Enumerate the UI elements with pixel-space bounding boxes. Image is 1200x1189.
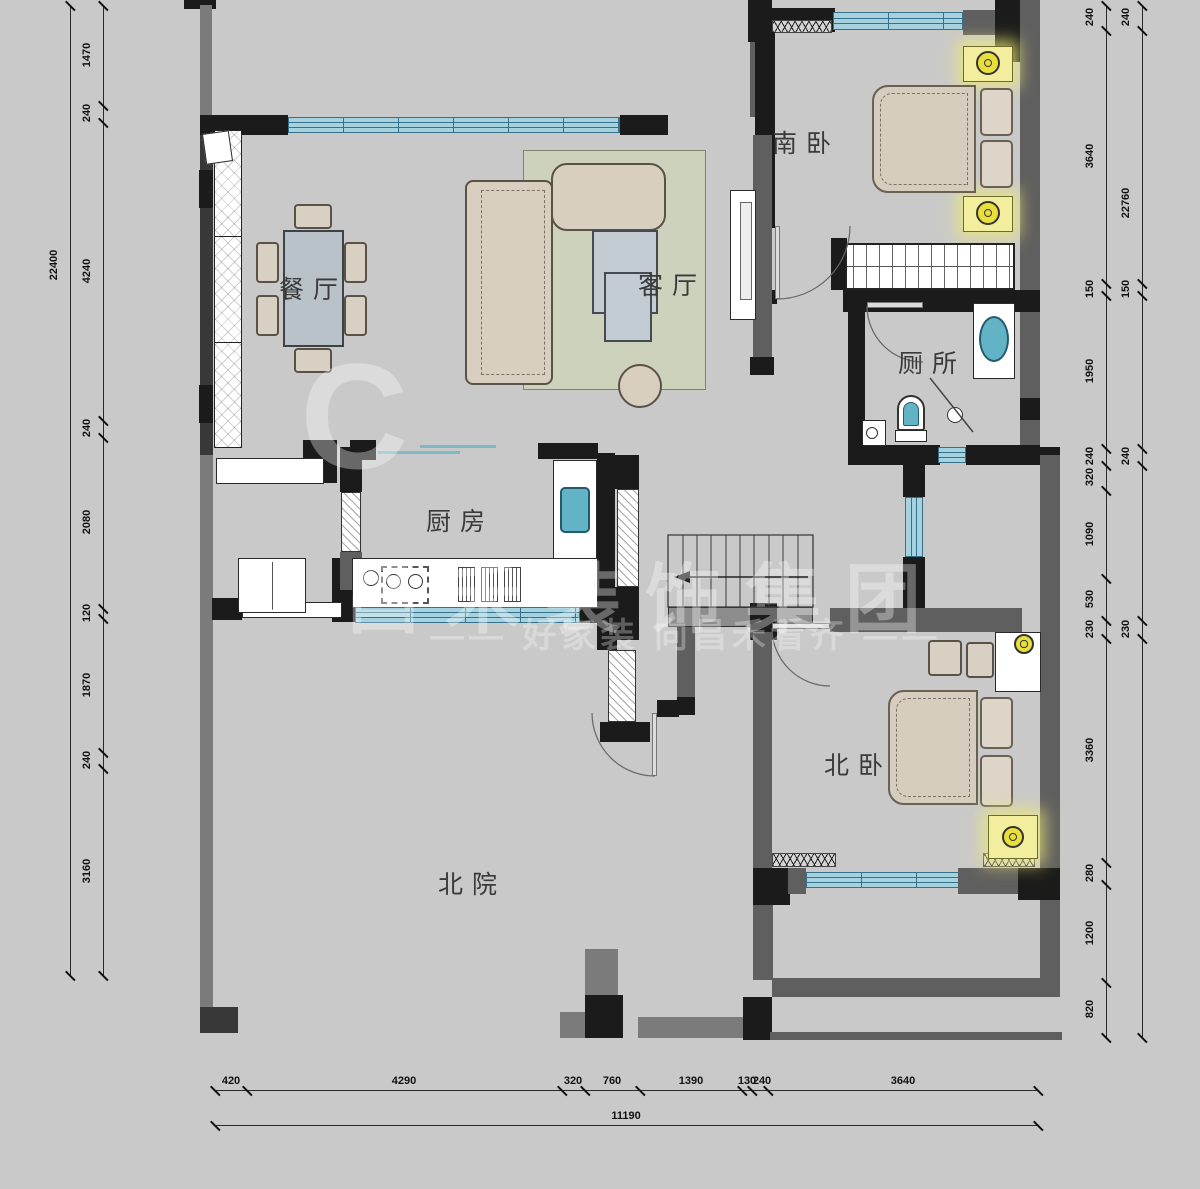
shower-partition [930, 378, 973, 432]
dimension-label: 760 [603, 1075, 621, 1087]
faucet [363, 570, 379, 586]
dimension-label: 2080 [81, 510, 93, 534]
window [905, 497, 923, 557]
door-leaf [867, 302, 923, 308]
dimension-label: 3160 [81, 859, 93, 883]
dimension-line-left-chain [103, 5, 104, 975]
cabinet-door [341, 492, 361, 552]
dimension-line-left-total [70, 5, 71, 975]
side-table [928, 640, 962, 676]
wall-segment [200, 5, 212, 117]
fridge [238, 558, 306, 613]
wall-segment [200, 1007, 238, 1033]
dimension-label: 150 [1120, 280, 1132, 298]
wall-segment [638, 1017, 743, 1038]
wall-segment [340, 447, 362, 492]
wall-segment [200, 455, 213, 1007]
wall-segment [600, 722, 650, 742]
cabinet-divider [214, 236, 242, 237]
dimension-label: 120 [81, 604, 93, 622]
dimension-label: 1870 [81, 673, 93, 697]
wall-segment [770, 1032, 1062, 1040]
wall-segment [677, 627, 695, 700]
wall-segment [753, 868, 790, 905]
wall-segment [848, 445, 940, 465]
dimension-label: 1390 [679, 1075, 703, 1087]
dining-chair [256, 295, 279, 336]
wall-segment [677, 697, 695, 715]
lamp-icon [976, 201, 1000, 225]
pillow [980, 140, 1013, 188]
dimension-label: 11190 [611, 1110, 640, 1122]
dimension-label: 240 [81, 104, 93, 122]
dimension-label: 240 [81, 751, 93, 769]
wall-segment [1020, 398, 1040, 420]
stair-treads [683, 535, 798, 607]
toilet-base [895, 430, 927, 442]
closet [617, 489, 639, 587]
dimension-line-right-chain [1106, 5, 1107, 1037]
insulation-hatch [772, 853, 836, 867]
wall-segment [199, 170, 213, 208]
wash-basin [979, 316, 1009, 362]
wall-segment [585, 949, 618, 995]
floor-plan-canvas: C 昌禾装饰集团 —— 好家装 向昌禾看齐 —— 餐厅客厅南卧厕所厨房北卧北院 … [0, 0, 1200, 1189]
dimension-label: 530 [1084, 590, 1096, 608]
wall-segment [830, 608, 1022, 632]
wall-segment [585, 995, 623, 1038]
dish-rack [504, 567, 521, 602]
dimension-label: 3640 [1084, 144, 1096, 168]
stair-outline [668, 535, 813, 607]
duct-column [608, 650, 636, 722]
stair-arrow-icon [674, 571, 690, 583]
dimension-label: 1950 [1084, 359, 1096, 383]
dimension-line-right-total [1142, 5, 1143, 1037]
daybed [551, 163, 666, 231]
dimension-label: 4240 [81, 259, 93, 283]
counter [216, 458, 324, 484]
wall-segment [958, 868, 1022, 894]
wall-segment [966, 445, 1040, 465]
dimension-label: 4290 [392, 1075, 416, 1087]
bed-sheet [880, 93, 968, 185]
wall-segment [788, 868, 806, 894]
wall-segment [620, 115, 668, 135]
burner [408, 574, 423, 589]
dimension-label: 150 [1084, 280, 1096, 298]
wall-segment [920, 296, 975, 309]
dimension-label: 240 [1084, 447, 1096, 465]
wall-segment [560, 1012, 585, 1038]
vent-line [378, 451, 460, 454]
dimension-label: 1470 [81, 43, 93, 67]
dimension-label: 3640 [891, 1075, 915, 1087]
wall-segment [1040, 455, 1060, 997]
wall-segment [750, 357, 774, 375]
door-leaf [772, 623, 830, 629]
dimension-label: 240 [81, 419, 93, 437]
dimension-label: 240 [1084, 8, 1096, 26]
window [938, 447, 966, 463]
wall-segment [199, 385, 213, 423]
insulation-hatch [772, 20, 832, 33]
dining-chair [294, 204, 332, 229]
wall-segment [597, 620, 617, 650]
dimension-label: 1200 [1084, 921, 1096, 945]
dimension-label: 280 [1084, 864, 1096, 882]
cabinet-divider [214, 342, 242, 343]
dimension-label: 22760 [1120, 188, 1132, 219]
wall-segment [1020, 0, 1040, 455]
dimension-label: 240 [1120, 447, 1132, 465]
wall-segment [538, 443, 598, 459]
dimension-label: 22400 [48, 250, 60, 281]
hall-cabinet [214, 130, 242, 448]
dimension-label: 230 [1084, 620, 1096, 638]
dimension-label: 240 [1120, 8, 1132, 26]
wall-segment [772, 978, 1040, 997]
dimension-label: 230 [1120, 620, 1132, 638]
wall-segment [753, 905, 773, 980]
wardrobe [845, 243, 1015, 290]
door-arc [772, 628, 830, 686]
sofa [465, 180, 553, 385]
lamp-icon [976, 51, 1000, 75]
dimension-line-bottom-chain [215, 1090, 1038, 1091]
pillow [980, 755, 1013, 807]
dimension-label: 3360 [1084, 738, 1096, 762]
window [355, 607, 580, 623]
dimension-label: 320 [1084, 468, 1096, 486]
bed-north [888, 690, 978, 805]
bed-south [872, 85, 976, 193]
room-label-north-yard: 北院 [438, 865, 506, 901]
floor-drain [947, 407, 963, 423]
room-label-north-bedroom: 北卧 [824, 746, 892, 782]
washer-door [866, 427, 878, 439]
sofa-cushion [481, 190, 545, 375]
tv [740, 202, 752, 300]
wall-segment [1018, 868, 1060, 900]
door-leaf [652, 713, 657, 776]
wall-segment [597, 453, 615, 623]
room-label-toilet: 厕所 [898, 344, 966, 380]
dimension-label: 820 [1084, 1000, 1096, 1018]
dimension-label: 420 [222, 1075, 240, 1087]
pillow [980, 88, 1013, 136]
lamp-icon [1014, 634, 1034, 654]
wall-segment [743, 997, 772, 1040]
dining-chair [256, 242, 279, 283]
dining-chair [294, 348, 332, 373]
dish-rack [458, 567, 475, 602]
wall-segment [615, 587, 639, 640]
vent-line [420, 445, 496, 448]
wall-segment [753, 632, 772, 868]
window [806, 872, 960, 888]
wall-segment [657, 700, 679, 717]
dimension-label: 240 [753, 1075, 771, 1087]
dish-rack [481, 567, 498, 602]
desk-chair [966, 642, 994, 678]
kitchen-sink [560, 487, 590, 533]
window [288, 117, 620, 133]
entry-door-leaf [202, 130, 233, 164]
bed-sheet [896, 698, 970, 797]
room-label-living: 客厅 [638, 266, 706, 302]
room-label-south-bedroom: 南卧 [772, 124, 840, 160]
wall-segment [963, 10, 997, 35]
room-label-kitchen: 厨房 [426, 502, 494, 538]
dimension-line-bottom-total [215, 1125, 1038, 1126]
pouf [618, 364, 662, 408]
toilet-seat [903, 402, 919, 426]
pillow [980, 697, 1013, 749]
window [833, 12, 963, 30]
dimension-label: 1090 [1084, 522, 1096, 546]
wall-segment [903, 455, 925, 497]
burner [386, 574, 401, 589]
room-label-dining: 餐厅 [279, 270, 347, 306]
dining-chair [344, 295, 367, 336]
lamp-icon [1002, 826, 1024, 848]
door-leaf [775, 226, 780, 299]
wall-segment [615, 455, 639, 489]
dimension-label: 320 [564, 1075, 582, 1087]
dining-chair [344, 242, 367, 283]
